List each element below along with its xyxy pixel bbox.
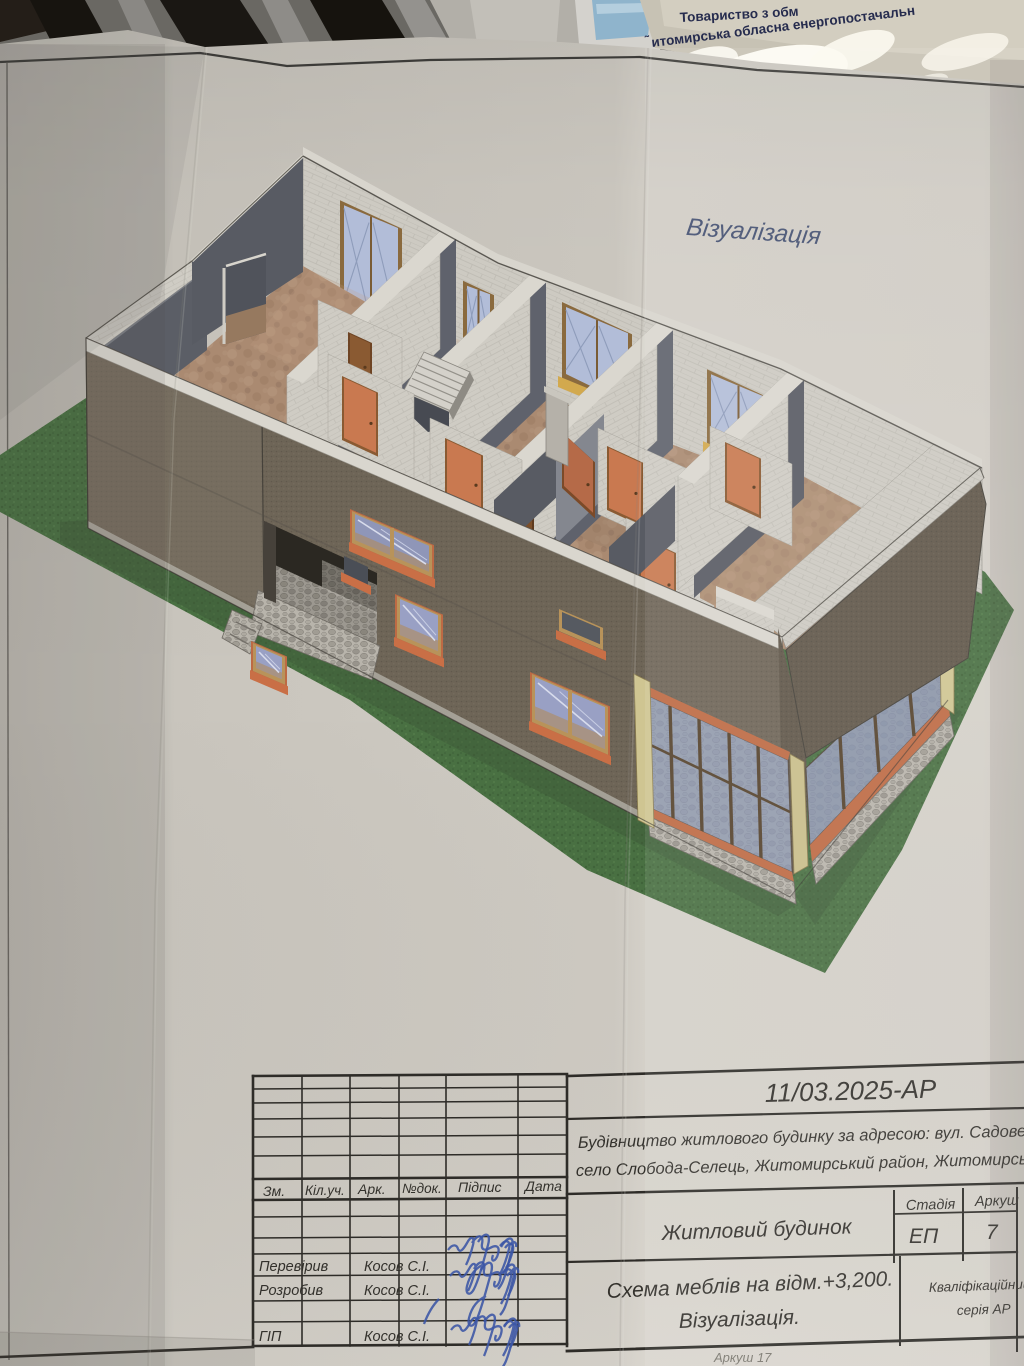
svg-text:ГІП: ГІП xyxy=(259,1329,282,1345)
svg-text:Косов С.І.: Косов С.І. xyxy=(364,1259,430,1275)
svg-text:Перевірив: Перевірив xyxy=(259,1259,329,1275)
svg-text:№док.: №док. xyxy=(402,1181,442,1196)
svg-text:Розробив: Розробив xyxy=(259,1283,323,1299)
svg-text:Косов С.І.: Косов С.І. xyxy=(364,1329,430,1345)
svg-text:Кіл.уч.: Кіл.уч. xyxy=(305,1183,345,1198)
svg-text:Зм.: Зм. xyxy=(263,1183,285,1199)
svg-text:Косов С.І.: Косов С.І. xyxy=(364,1283,430,1299)
svg-text:Підпис: Підпис xyxy=(458,1179,501,1195)
svg-text:Арк.: Арк. xyxy=(357,1181,386,1197)
svg-text:Дата: Дата xyxy=(523,1178,562,1194)
